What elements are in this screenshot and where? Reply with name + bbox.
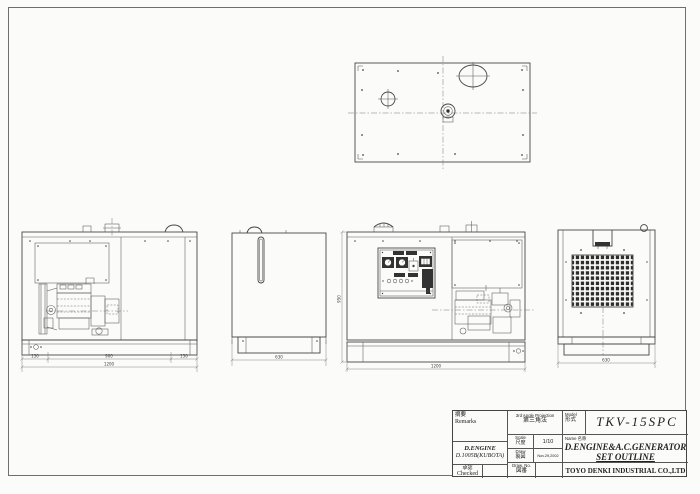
grille-end-view: 630	[557, 225, 657, 368]
front-view: 1200 950	[337, 221, 536, 372]
fuel-filler-cap	[378, 89, 398, 109]
model-value: TKV-15SPC	[586, 415, 688, 429]
engine-model: D.ENGINE	[453, 445, 507, 453]
air-inlet-door	[452, 240, 522, 288]
recessed-handle[interactable]	[593, 230, 612, 249]
name-cell: Name 名称 D.ENGINE&A.C.GENERATOR SET OUTLI…	[563, 435, 688, 463]
approved-sign-cell	[483, 465, 508, 478]
dim-side-right: 150	[180, 354, 188, 359]
control-panel	[378, 248, 435, 298]
indicator-lamps	[382, 279, 412, 283]
dim-side-left: 150	[31, 354, 39, 359]
side-bolt-dots	[29, 240, 191, 242]
air-outlet-grille	[572, 249, 633, 314]
hour-meter	[419, 256, 432, 267]
draw-date: Nov.29,2002	[534, 454, 562, 459]
switch-label	[394, 273, 405, 277]
voltmeter	[382, 257, 394, 268]
dim-front-total: 1200	[431, 364, 442, 369]
scale-value-cell: 1/10	[534, 435, 563, 449]
muffler-rain-cap	[374, 223, 393, 233]
engine-spec-cell: D.ENGINE D.1005B(KUBOTA)	[453, 442, 508, 465]
scale-value: 1/10	[534, 439, 562, 446]
projection-cell: 3rd Angle Projection 第三角法	[508, 411, 563, 435]
radiator-end-view: 630	[231, 227, 328, 366]
base-frame-grille-end	[558, 337, 655, 355]
scale-kanji: 尺度	[508, 440, 533, 446]
dim-side-total: 1200	[104, 362, 115, 367]
name-label-en: Name	[565, 436, 576, 441]
base-frame-radiator-end	[232, 337, 326, 353]
front-bolt-dots	[354, 240, 518, 242]
remarks-cell: 摘要 Remarks	[453, 411, 508, 442]
side-view-dimensions: 150 900 150 1200	[21, 342, 199, 372]
drawno-label-cell: Draw. No. 図番	[508, 463, 536, 478]
dim-front-height: 950	[337, 295, 342, 303]
base-frame-front	[347, 342, 525, 362]
model-kanji: 形式	[565, 417, 583, 424]
draw-date-cell: Nov.29,2002	[534, 449, 563, 463]
service-door	[35, 243, 109, 283]
roof-filler-cap	[466, 221, 477, 232]
dim-grille-end-width: 630	[602, 358, 610, 363]
panel-nameplate	[393, 251, 404, 255]
drawno-value-cell	[536, 463, 563, 478]
engine-type: D.1005B(KUBOTA)	[453, 453, 507, 460]
model-value-cell: TKV-15SPC	[586, 411, 688, 435]
projection-kanji: 第三角法	[508, 418, 562, 425]
exhaust-fitting	[103, 218, 121, 236]
panel-nameplate-2	[406, 251, 417, 255]
radiator-cap	[247, 227, 262, 233]
drawing-sheet: 150 900 150 1200	[0, 0, 700, 494]
name-label: Name 名称	[563, 435, 688, 442]
plan-view	[348, 56, 537, 169]
ammeter	[396, 257, 408, 268]
drawno-kanji: 図番	[508, 468, 535, 475]
dim-radiator-end-width: 630	[275, 355, 283, 360]
radiator-cap-side	[165, 225, 183, 232]
company-cell: TOYO DENKI INDUSTRIAL CO.,LTD	[563, 463, 688, 478]
circuit-breaker[interactable]	[422, 269, 433, 294]
roof-vent-cap	[440, 226, 449, 232]
roof-cap	[83, 226, 91, 232]
remarks-label: Remarks	[455, 419, 505, 426]
name-line1: D.ENGINE&A.C.GENERATOR	[563, 442, 688, 452]
dim-side-mid: 900	[105, 354, 113, 359]
engine-detail-side	[39, 278, 128, 335]
name-line2: SET OUTLINE	[563, 452, 688, 462]
plan-bolt-dots	[361, 69, 524, 156]
door-handle-slot	[258, 237, 264, 283]
model-label-cell: Model 形式	[563, 411, 586, 435]
draw-kanji: 製図	[508, 454, 533, 460]
left-side-view: 150 900 150 1200	[21, 218, 199, 372]
draw-label-cell: Draw 製図	[508, 449, 534, 463]
drain-plug	[30, 345, 42, 350]
engine-detail-front	[432, 285, 535, 334]
name-label-kanji: 名称	[578, 436, 587, 441]
approved-label: Checked	[453, 471, 482, 478]
scale-label-cell: Scale 尺度	[508, 435, 534, 449]
switch-label-2	[408, 273, 418, 277]
access-hole	[456, 62, 490, 90]
company-name: TOYO DENKI INDUSTRIAL CO.,LTD	[563, 467, 688, 475]
front-view-dimensions: 1200 950	[337, 231, 527, 373]
key-switch[interactable]	[409, 258, 418, 271]
approved-cell: 承認 Checked	[453, 465, 483, 478]
title-block: 摘要 Remarks D.ENGINE D.1005B(KUBOTA) 承認 C…	[452, 410, 687, 477]
